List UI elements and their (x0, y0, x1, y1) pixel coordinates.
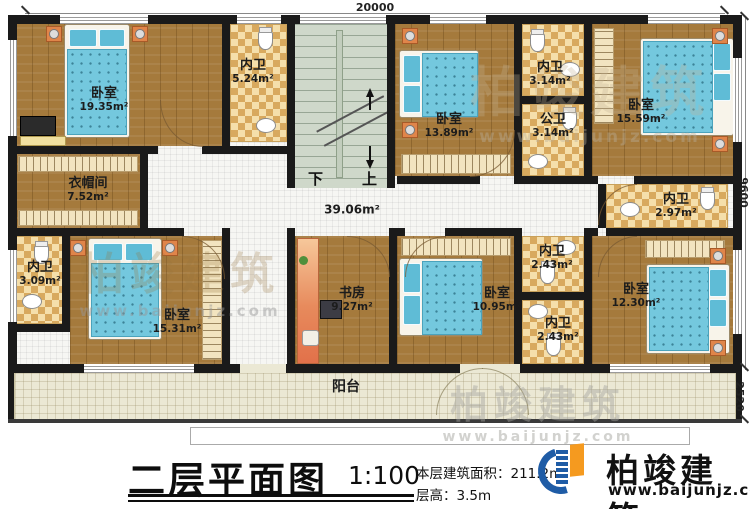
wardrobe (18, 210, 138, 226)
pillow (99, 29, 125, 47)
pillow (709, 299, 727, 327)
toilet-icon (258, 30, 273, 50)
nightstand (162, 240, 178, 256)
stair-label-up: 上 (362, 168, 377, 189)
wall (387, 24, 395, 188)
balcony-door-opening (240, 364, 286, 373)
wall (445, 228, 518, 236)
window (237, 15, 281, 24)
stair-label-down: 下 (308, 168, 323, 189)
room-label-bedroom-top-middle: 卧室13.89m² (425, 113, 474, 139)
plan-scale: 1:100 (348, 461, 420, 490)
roof-outline (190, 427, 690, 445)
mattress (91, 263, 159, 337)
nightstand (712, 136, 728, 152)
stair-arrow-line (369, 96, 371, 110)
wall (202, 146, 295, 154)
title-underline (128, 494, 414, 497)
wardrobe (18, 156, 138, 172)
pillow (93, 243, 123, 261)
room-label-balcony: 阳台 (332, 380, 360, 396)
sink-icon (22, 294, 42, 309)
room-label-bedroom-bottom-left: 卧室15.31m² (153, 309, 202, 335)
window (8, 40, 17, 136)
wall (522, 292, 584, 300)
nightstand (710, 340, 726, 356)
window (648, 15, 720, 24)
wall (514, 24, 522, 184)
window (300, 15, 386, 24)
wall (636, 228, 740, 236)
pillow (713, 73, 731, 101)
pillow (125, 243, 153, 261)
plant-icon (299, 256, 308, 265)
nightstand (46, 26, 62, 42)
toilet-icon (700, 190, 715, 210)
wall (8, 228, 184, 236)
dimension-top: 20000 (356, 1, 394, 14)
floor-height-note: 层高：3.5m (416, 484, 491, 504)
window (733, 250, 742, 334)
nightstand (402, 28, 418, 44)
nightstand (710, 248, 726, 264)
wall (634, 176, 740, 184)
wall (584, 24, 592, 184)
logo-name: 柏竣建筑 (606, 444, 750, 509)
window (733, 58, 742, 142)
room-label-bath-bottom-left: 内卫3.09m² (19, 261, 60, 287)
logo-building-blue (556, 450, 568, 486)
room-label-bath-right: 内卫2.97m² (655, 193, 696, 219)
room-label-bath-top-middle: 内卫3.14m² (529, 61, 570, 87)
wall (222, 228, 230, 372)
room-label-bedroom-top-left: 卧室19.35m² (80, 87, 129, 113)
room-label-hallway: 39.06m² (324, 203, 380, 216)
balcony-floor (14, 372, 736, 421)
balcony-railing (8, 419, 742, 423)
wall (287, 24, 295, 188)
bed (399, 50, 479, 118)
room-label-bedroom-bottom-right: 卧室12.30m² (612, 283, 661, 309)
pillow (713, 43, 731, 71)
wall (222, 24, 230, 146)
stair-rail (336, 30, 343, 178)
window (610, 364, 710, 373)
room-label-cloakroom: 衣帽间7.52m² (67, 177, 108, 203)
bed (88, 238, 162, 340)
pillow (403, 85, 421, 113)
nightstand (712, 28, 728, 44)
wall (16, 324, 70, 332)
pillow (69, 29, 97, 47)
window (60, 15, 148, 24)
dimension-right-balcony: 2520 (733, 381, 746, 412)
wall (522, 96, 584, 104)
window (8, 250, 17, 322)
stair-arrow-line (369, 146, 371, 160)
wall (590, 176, 598, 184)
desk (20, 116, 56, 136)
wall (287, 228, 295, 372)
pillow (403, 295, 421, 325)
title-underline (128, 500, 414, 502)
toilet-icon (530, 32, 545, 52)
wall (584, 228, 592, 372)
pillow (403, 55, 421, 83)
logo-building-orange (570, 443, 584, 476)
baijun-logo-icon (536, 440, 600, 504)
sink-icon (256, 118, 276, 133)
room-label-bath-bottom-middle-2: 内卫2.43m² (537, 317, 578, 343)
wall (397, 176, 480, 184)
logo-site: www.baijunjz.com (608, 481, 750, 499)
wardrobe (594, 28, 614, 124)
dimension-right-main: 9600 (737, 177, 750, 208)
room-label-study: 书房9.27m² (331, 287, 372, 313)
wall (397, 228, 405, 236)
room-label-bath-bottom-middle-1: 内卫2.43m² (531, 245, 572, 271)
wall (8, 146, 158, 154)
room-label-bath-top-left: 内卫5.24m² (232, 59, 273, 85)
bed (64, 24, 130, 138)
wall (389, 228, 397, 372)
nightstand (402, 122, 418, 138)
window (430, 15, 486, 24)
pillow (709, 269, 727, 297)
room-label-bedroom-bottom-middle: 卧室10.95m² (473, 287, 522, 313)
wall (140, 154, 148, 228)
chair (302, 330, 319, 346)
room-label-bedroom-top-right: 卧室15.59m² (617, 99, 666, 125)
nightstand (132, 26, 148, 42)
desk-keyboard (20, 136, 66, 146)
sink-icon (528, 154, 548, 169)
mattress (422, 53, 478, 117)
wall (62, 236, 70, 324)
wall (8, 372, 14, 423)
window (84, 364, 194, 373)
wall (514, 176, 592, 184)
floor-plan-canvas: 20000 9600 2520 (0, 0, 750, 509)
nightstand (70, 240, 86, 256)
room-label-bath-public: 公卫3.14m² (532, 113, 573, 139)
